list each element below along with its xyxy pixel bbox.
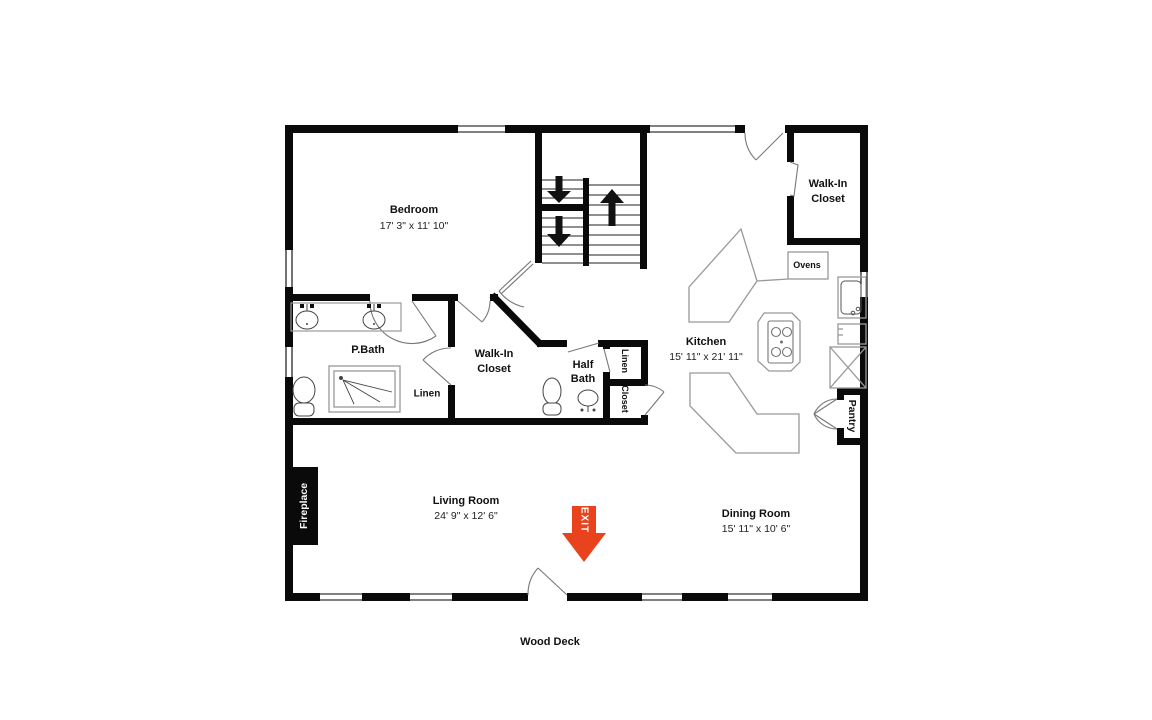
vanity-sink-2: [363, 304, 385, 329]
bedroom-label: Bedroom: [390, 204, 438, 216]
lower-counter: [690, 373, 799, 453]
kitchen-island: [758, 313, 800, 371]
diagonal-wall: [492, 295, 541, 345]
closet-hall-label: Closet: [620, 385, 630, 413]
kitchen-label: Kitchen: [686, 336, 726, 348]
dining-room-dimensions: 15' 11" x 10' 6": [722, 523, 790, 535]
walk-in-closet-mid-label-1: Walk-In: [475, 348, 514, 360]
pantry-label: Pantry: [846, 400, 858, 433]
fireplace-label: Fireplace: [298, 483, 310, 529]
floorplan-canvas: Bedroom 17' 3" x 11' 10" Walk-In Closet …: [0, 0, 1152, 720]
vanity-sink-1: [296, 304, 318, 329]
pbath-vanity: [291, 303, 401, 331]
stove: [768, 321, 793, 363]
halfbath-toilet: [543, 378, 561, 415]
living-room-label: Living Room: [433, 495, 500, 507]
p-bath-label: P.Bath: [351, 344, 384, 356]
upper-counter: [689, 229, 757, 322]
pbath-toilet: [293, 377, 315, 416]
halfbath-sink: [578, 390, 598, 412]
linen-bath-label: Linen: [414, 389, 441, 400]
dining-room-label: Dining Room: [722, 508, 790, 520]
shower: [329, 366, 400, 412]
half-bath-label-1: Half: [573, 359, 594, 371]
kitchen-sink: [841, 281, 861, 315]
walk-in-closet-mid-label-2: Closet: [477, 363, 511, 375]
exit-label: EXIT: [579, 507, 590, 533]
wood-deck-label: Wood Deck: [520, 636, 580, 648]
walk-in-closet-top-label-1: Walk-In: [809, 178, 848, 190]
linen-hall-label: Linen: [620, 349, 630, 373]
stair-down-arrow-2: [547, 216, 571, 247]
kitchen-dimensions: 15' 11" x 21' 11": [669, 351, 743, 363]
living-room-dimensions: 24' 9" x 12' 6": [434, 510, 497, 522]
half-bath-label-2: Bath: [571, 373, 595, 385]
ovens-label: Ovens: [793, 260, 821, 270]
walk-in-closet-top-label-2: Closet: [811, 193, 845, 205]
bedroom-dimensions: 17' 3" x 11' 10": [380, 220, 448, 232]
